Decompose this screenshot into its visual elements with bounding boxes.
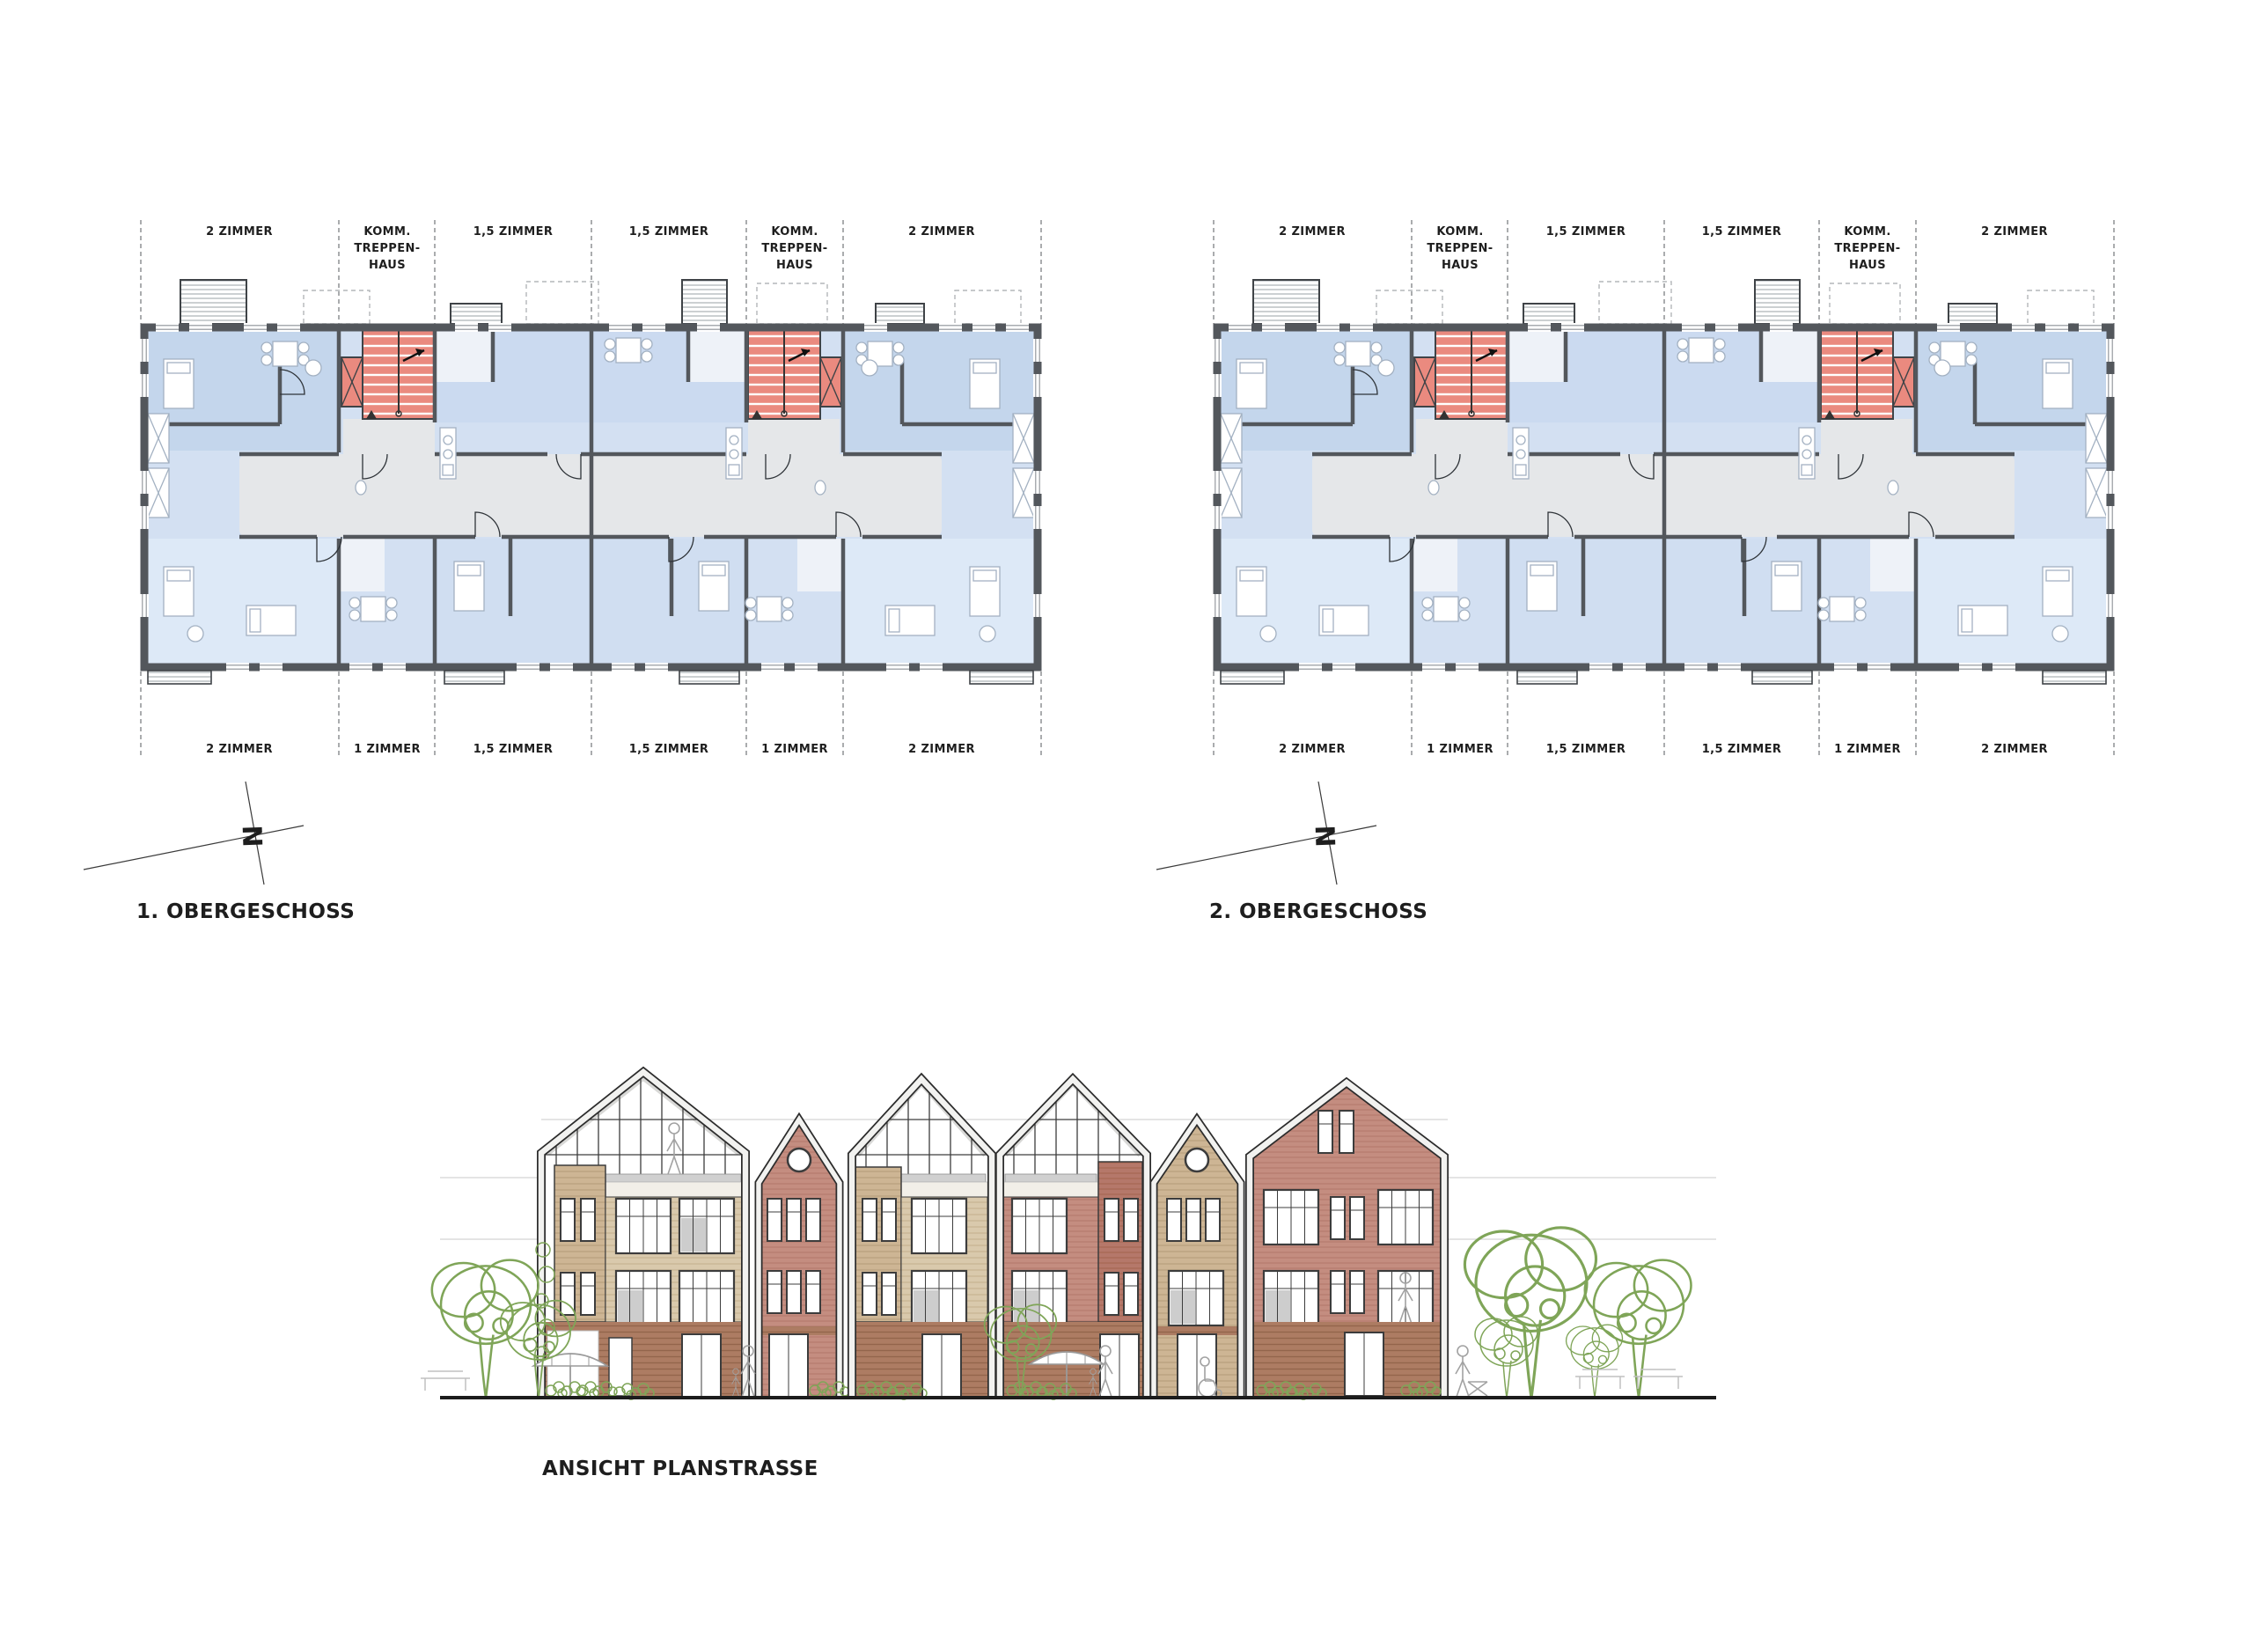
- bench-icon: [1575, 1369, 1625, 1389]
- entry-door: [769, 1334, 808, 1398]
- entry-door: [1345, 1333, 1383, 1396]
- entry-door: [1178, 1334, 1216, 1398]
- unit-label-top: 1,5 ZIMMER: [1702, 225, 1782, 239]
- tree-icon: [1464, 1228, 1596, 1398]
- unit-label-top: KOMM.: [363, 225, 410, 239]
- unit-label-bottom: 1 ZIMMER: [354, 743, 421, 756]
- unit-label-bottom: 2 ZIMMER: [1279, 743, 1346, 756]
- unit-label-bottom: 1,5 ZIMMER: [1702, 743, 1782, 756]
- unit-label-top: TREPPEN-: [761, 242, 827, 255]
- unit-label-top: HAUS: [1442, 259, 1479, 272]
- unit-label-bottom: 1 ZIMMER: [761, 743, 828, 756]
- unit-label-top: 2 ZIMMER: [1981, 225, 2048, 239]
- unit-label-top: HAUS: [1849, 259, 1886, 272]
- elevation-drawing: ANSICHT PLANSTRASSE: [421, 1056, 1716, 1480]
- elevation-title: ANSICHT PLANSTRASSE: [542, 1457, 818, 1480]
- floor-plan-2: 2 ZIMMER KOMM. TREPPEN- HAUS 1,5 ZIMMER …: [1156, 220, 2115, 923]
- unit-label-bottom: 1,5 ZIMMER: [1546, 743, 1626, 756]
- north-letter: N: [236, 825, 268, 848]
- unit-label-top: KOMM.: [1844, 225, 1890, 239]
- house-3: [852, 1065, 992, 1399]
- house-4: [1000, 1065, 1147, 1399]
- north-letter: N: [1309, 825, 1340, 848]
- unit-label-bottom: 1 ZIMMER: [1427, 743, 1493, 756]
- ground-line: [440, 1396, 1716, 1399]
- unit-label-top: TREPPEN-: [354, 242, 420, 255]
- plan-title: 1. OBERGESCHOSS: [136, 900, 355, 923]
- unit-label-bottom: 1 ZIMMER: [1834, 743, 1901, 756]
- unit-label-bottom: 2 ZIMMER: [908, 743, 975, 756]
- tree-icon: [1567, 1325, 1623, 1398]
- round-window: [1185, 1149, 1208, 1171]
- entry-door: [682, 1334, 721, 1398]
- unit-label-top: 2 ZIMMER: [1279, 225, 1346, 239]
- unit-label-top: 1,5 ZIMMER: [629, 225, 709, 239]
- unit-label-top: HAUS: [776, 259, 813, 272]
- drawing-sheet: 2 ZIMMER KOMM. TREPPEN- HAUS 1,5 ZIMMER …: [0, 0, 2253, 1652]
- floor-plan-1: 2 ZIMMER KOMM. TREPPEN- HAUS 1,5 ZIMMER …: [84, 220, 1042, 923]
- tree-icon: [1475, 1317, 1537, 1398]
- unit-label-top: 2 ZIMMER: [206, 225, 273, 239]
- house-6: [1250, 1083, 1444, 1399]
- unit-label-top: 1,5 ZIMMER: [473, 225, 554, 239]
- unit-label-top: HAUS: [369, 259, 406, 272]
- unit-label-bottom: 2 ZIMMER: [1981, 743, 2048, 756]
- unit-label-bottom: 1,5 ZIMMER: [629, 743, 709, 756]
- unit-label-bottom: 1,5 ZIMMER: [473, 743, 554, 756]
- unit-label-top: 2 ZIMMER: [908, 225, 975, 239]
- house-5: [1154, 1120, 1241, 1398]
- tree-icon: [432, 1260, 539, 1398]
- entry-door: [922, 1334, 961, 1398]
- bench-icon: [421, 1371, 470, 1391]
- plan-title: 2. OBERGESCHOSS: [1209, 900, 1427, 923]
- unit-label-top: KOMM.: [1436, 225, 1483, 239]
- round-window: [788, 1149, 811, 1171]
- unit-label-top: TREPPEN-: [1427, 242, 1493, 255]
- unit-label-top: TREPPEN-: [1834, 242, 1900, 255]
- unit-label-top: KOMM.: [771, 225, 818, 239]
- unit-label-bottom: 2 ZIMMER: [206, 743, 273, 756]
- unit-label-top: 1,5 ZIMMER: [1546, 225, 1626, 239]
